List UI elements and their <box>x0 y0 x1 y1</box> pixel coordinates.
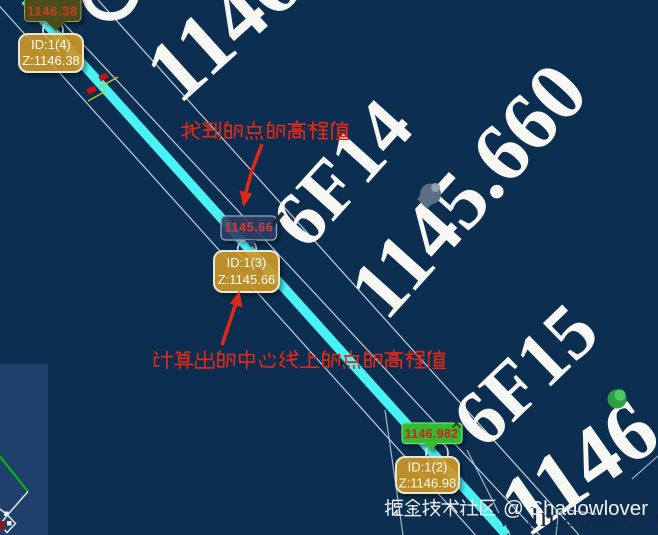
svg-text:ID:1(2): ID:1(2) <box>408 460 448 475</box>
svg-text:1146.982: 1146.982 <box>405 427 459 441</box>
svg-text:@ Shadowlover: @ Shadowlover <box>503 497 648 520</box>
svg-text:1146.38: 1146.38 <box>27 4 77 19</box>
svg-text:ID:1(3): ID:1(3) <box>227 255 267 270</box>
svg-text:Z:1146.38: Z:1146.38 <box>22 53 80 68</box>
svg-text:Z:1146.98: Z:1146.98 <box>399 476 457 491</box>
svg-text:Z:1145.66: Z:1145.66 <box>218 272 276 287</box>
svg-text:ID:1(4): ID:1(4) <box>31 37 71 52</box>
svg-text:1145.66: 1145.66 <box>225 221 274 235</box>
